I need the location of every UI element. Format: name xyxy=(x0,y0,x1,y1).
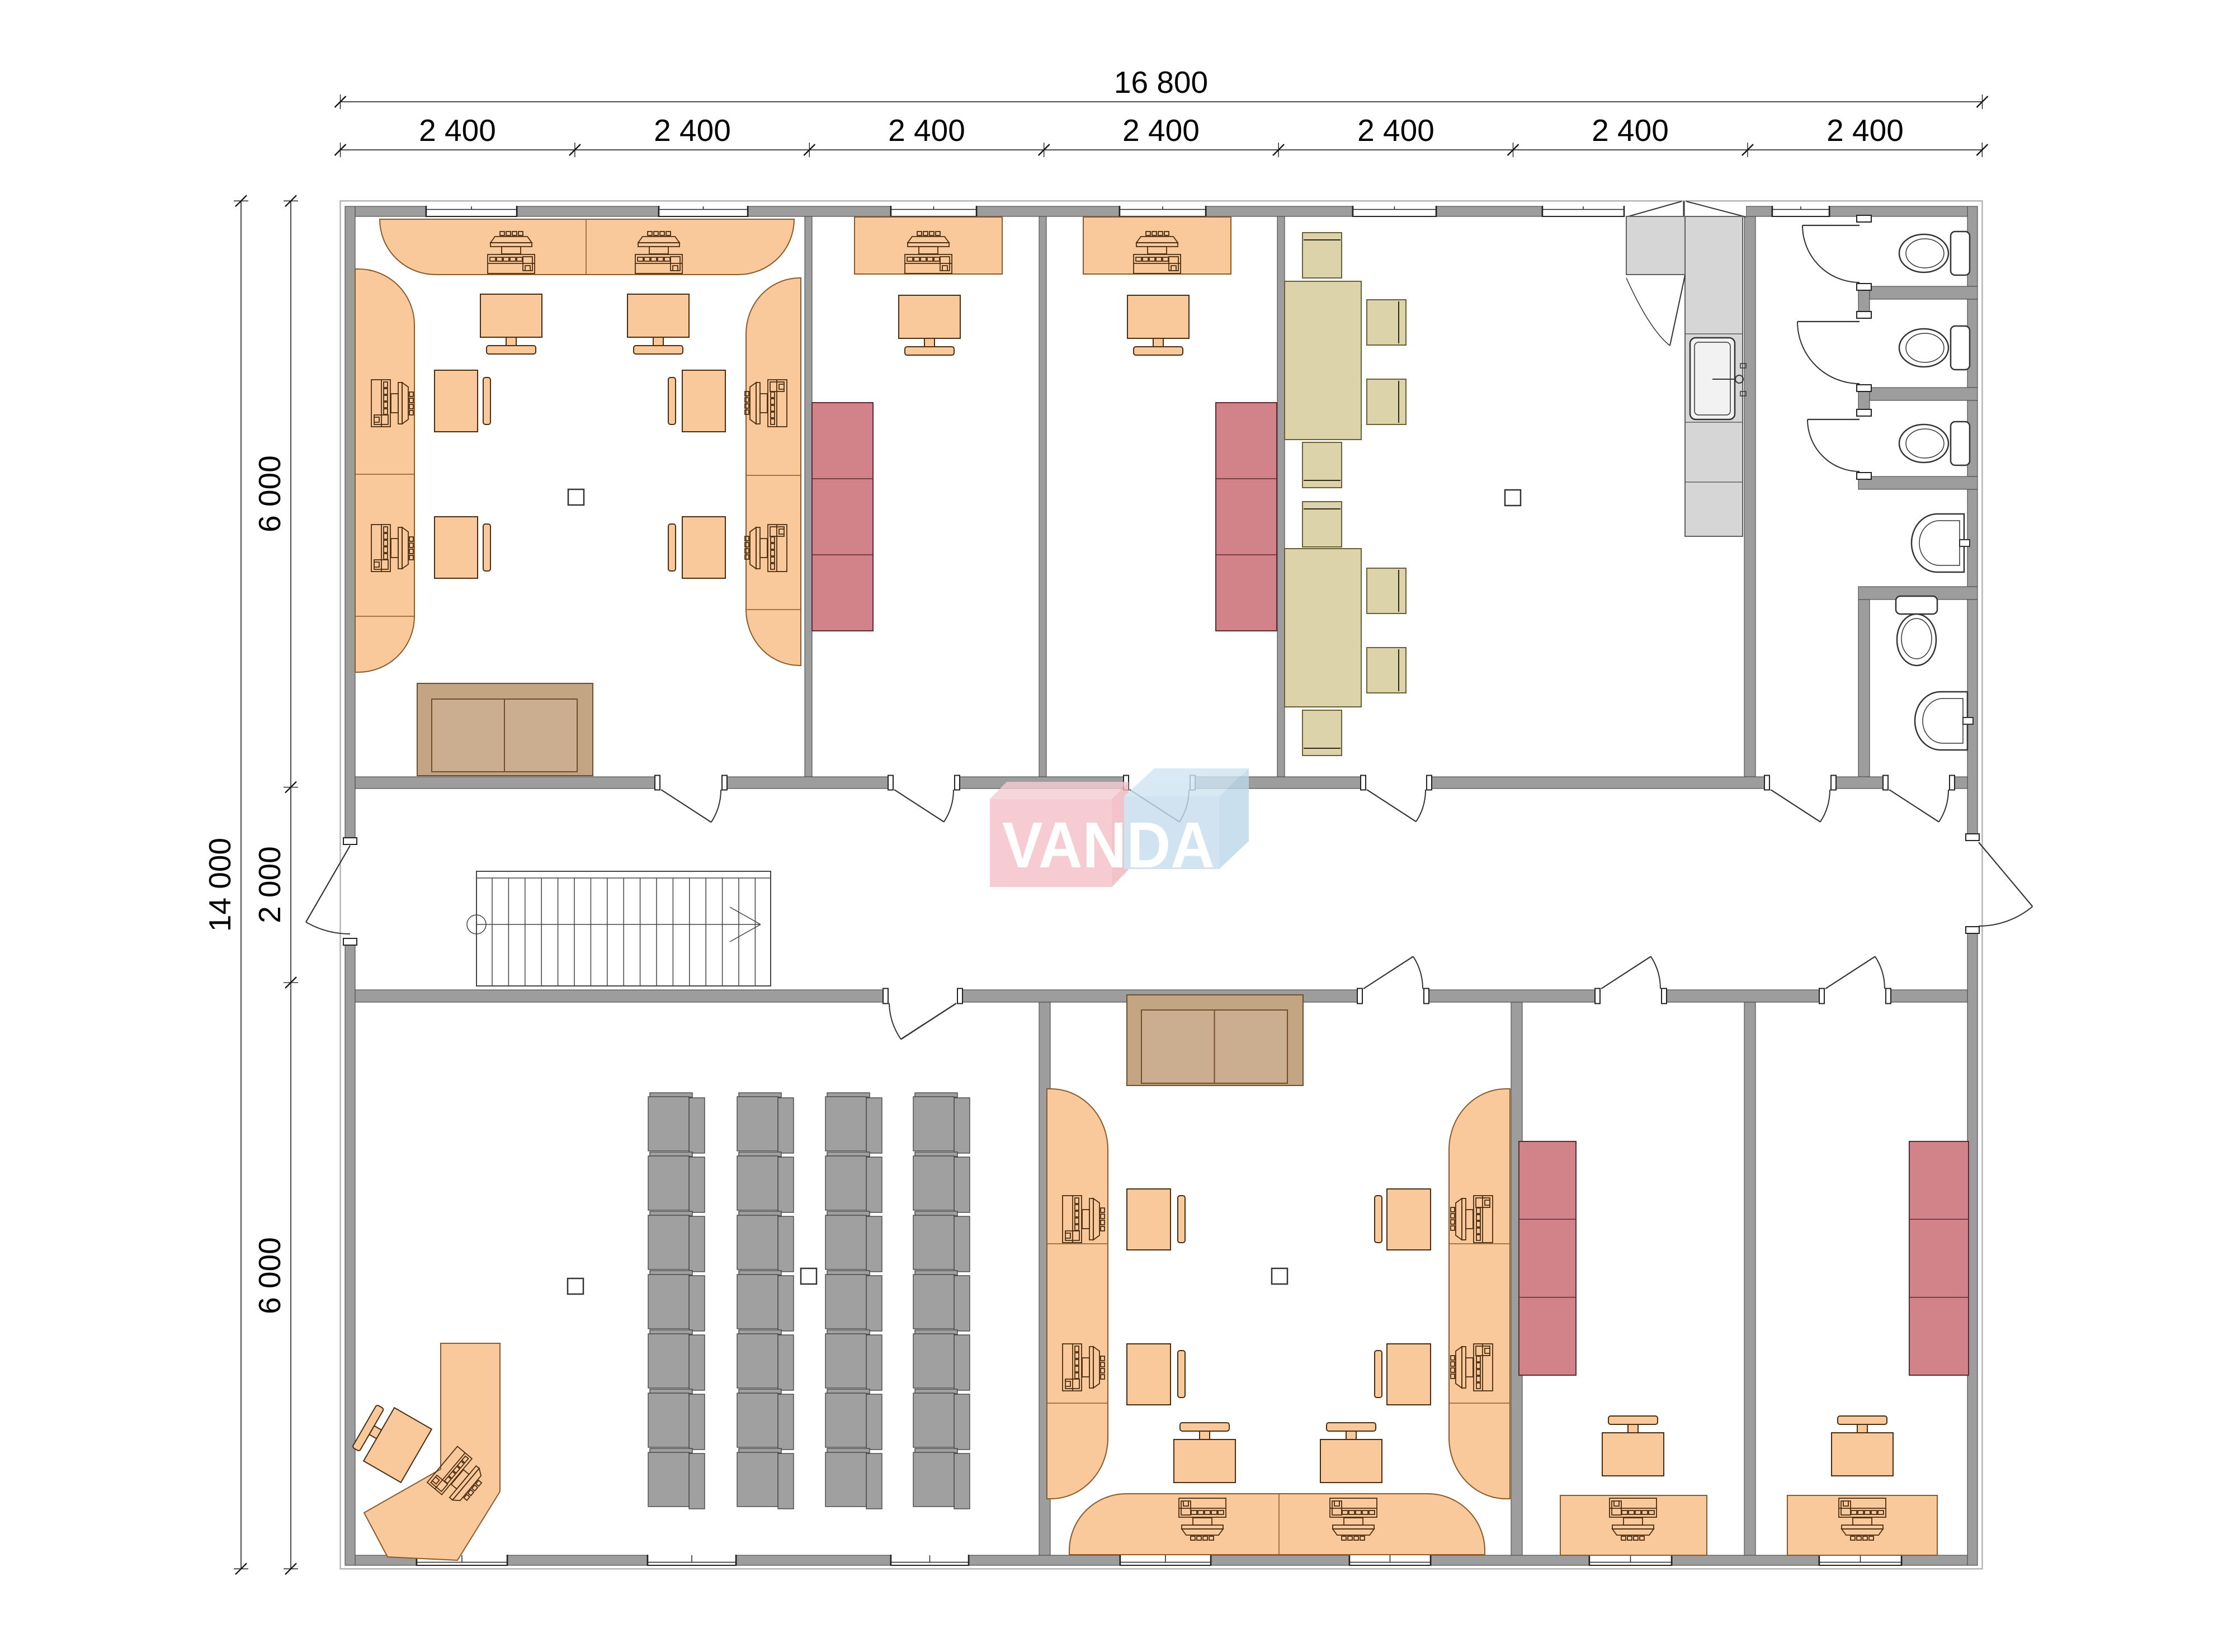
svg-text:2 400: 2 400 xyxy=(1357,113,1434,148)
svg-text:2 000: 2 000 xyxy=(252,846,287,923)
svg-text:2 400: 2 400 xyxy=(419,113,496,148)
svg-text:2 400: 2 400 xyxy=(1827,113,1904,148)
svg-text:2 400: 2 400 xyxy=(654,113,731,148)
svg-text:14 000: 14 000 xyxy=(202,838,237,932)
svg-text:2 400: 2 400 xyxy=(888,113,965,148)
svg-text:VANDA: VANDA xyxy=(1002,809,1215,881)
svg-text:16 800: 16 800 xyxy=(1114,65,1208,100)
svg-text:6 000: 6 000 xyxy=(252,1237,287,1314)
svg-text:6 000: 6 000 xyxy=(252,455,287,532)
svg-text:2 400: 2 400 xyxy=(1592,113,1669,148)
svg-text:2 400: 2 400 xyxy=(1122,113,1200,148)
